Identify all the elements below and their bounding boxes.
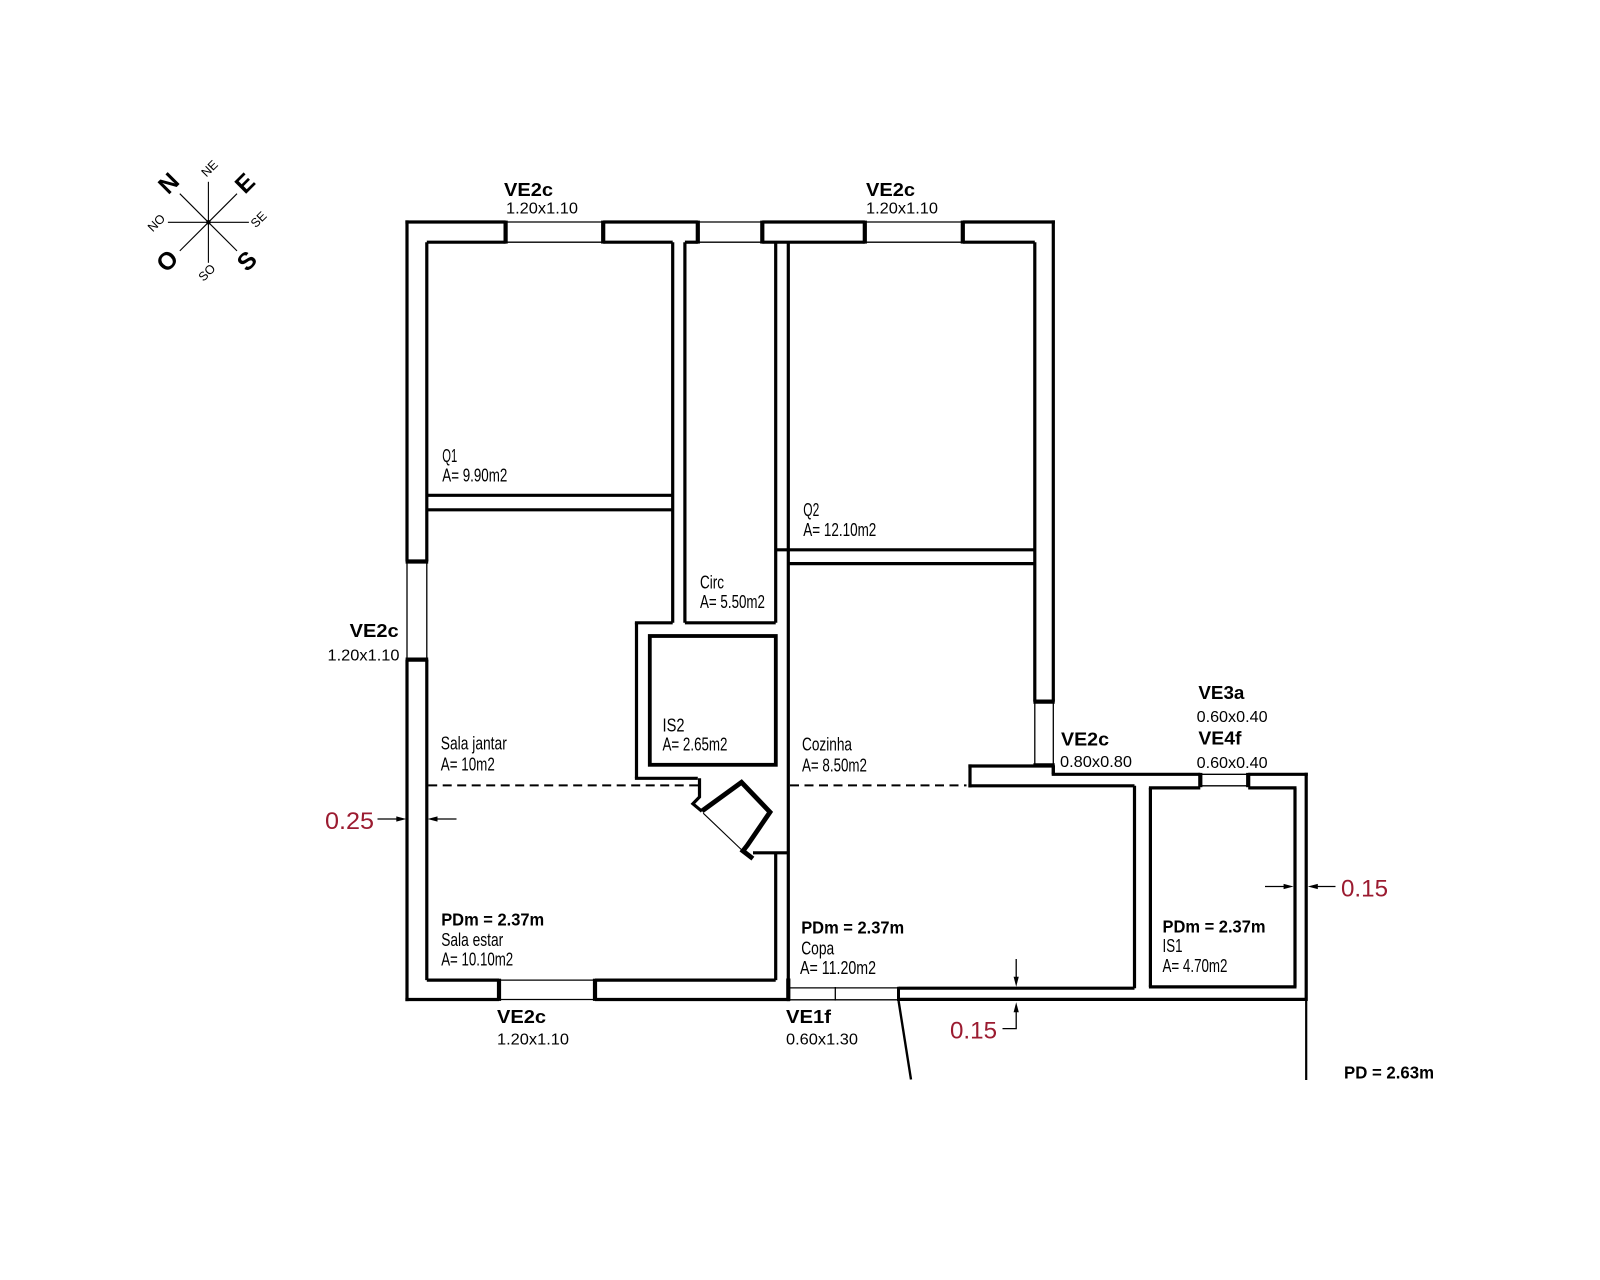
svg-text:A= 11.20m2: A= 11.20m2 xyxy=(800,957,876,978)
svg-text:VE2c: VE2c xyxy=(1061,729,1109,750)
svg-text:Cozinha: Cozinha xyxy=(802,734,853,755)
svg-text:PDm = 2.37m: PDm = 2.37m xyxy=(441,909,544,929)
svg-text:1.20x1.10: 1.20x1.10 xyxy=(328,648,400,665)
svg-text:Q1: Q1 xyxy=(442,445,457,466)
svg-text:VE2c: VE2c xyxy=(504,179,553,200)
svg-text:0.15: 0.15 xyxy=(950,1018,997,1045)
svg-text:A= 10.10m2: A= 10.10m2 xyxy=(441,949,513,970)
svg-text:1.20x1.10: 1.20x1.10 xyxy=(506,201,578,218)
svg-text:0.60x0.40: 0.60x0.40 xyxy=(1197,709,1268,726)
svg-text:A= 10m2: A= 10m2 xyxy=(441,754,495,775)
svg-text:0.25: 0.25 xyxy=(325,808,374,835)
svg-text:IS1: IS1 xyxy=(1163,935,1183,956)
svg-text:PD = 2.63m: PD = 2.63m xyxy=(1344,1063,1434,1083)
svg-text:VE1f: VE1f xyxy=(786,1006,832,1027)
svg-text:VE2c: VE2c xyxy=(866,179,915,200)
svg-text:VE2c: VE2c xyxy=(497,1006,546,1027)
svg-text:A= 9.90m2: A= 9.90m2 xyxy=(442,464,507,485)
svg-text:A= 8.50m2: A= 8.50m2 xyxy=(802,754,867,775)
svg-text:Copa: Copa xyxy=(801,937,835,958)
svg-text:Circ: Circ xyxy=(700,571,724,592)
svg-text:0.80x0.80: 0.80x0.80 xyxy=(1060,754,1132,771)
svg-text:A= 2.65m2: A= 2.65m2 xyxy=(663,734,728,755)
svg-text:Q2: Q2 xyxy=(803,499,819,520)
svg-text:Sala estar: Sala estar xyxy=(441,929,503,950)
svg-text:IS2: IS2 xyxy=(663,714,685,735)
svg-text:0.60x0.40: 0.60x0.40 xyxy=(1197,755,1268,772)
svg-text:PDm = 2.37m: PDm = 2.37m xyxy=(1163,917,1266,937)
svg-text:0.60x1.30: 0.60x1.30 xyxy=(786,1032,858,1049)
svg-text:A= 12.10m2: A= 12.10m2 xyxy=(803,519,876,540)
svg-text:1.20x1.10: 1.20x1.10 xyxy=(497,1032,569,1049)
svg-text:VE2c: VE2c xyxy=(350,620,399,641)
svg-text:Sala jantar: Sala jantar xyxy=(441,733,507,754)
svg-text:A= 5.50m2: A= 5.50m2 xyxy=(700,591,765,612)
svg-text:VE3a: VE3a xyxy=(1198,682,1245,703)
svg-text:0.15: 0.15 xyxy=(1341,876,1388,903)
svg-text:1.20x1.10: 1.20x1.10 xyxy=(866,201,938,218)
svg-text:VE4f: VE4f xyxy=(1198,728,1242,749)
svg-text:A= 4.70m2: A= 4.70m2 xyxy=(1163,955,1228,976)
svg-text:PDm = 2.37m: PDm = 2.37m xyxy=(801,917,904,937)
